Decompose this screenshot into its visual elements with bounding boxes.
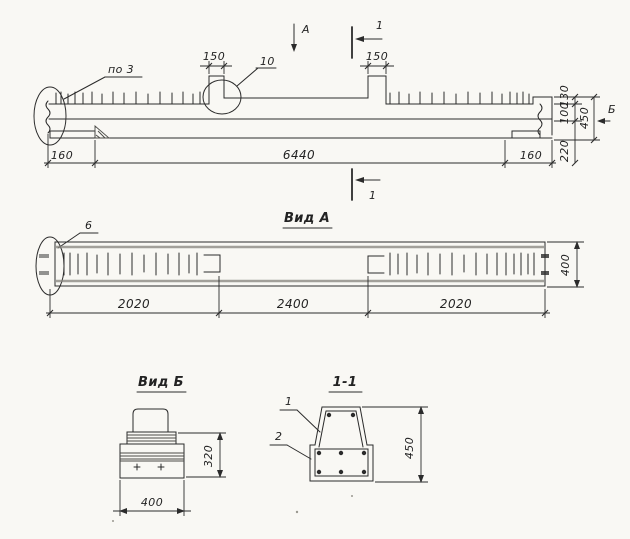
rebar-callout-2-label: 2: [275, 430, 282, 443]
stub-dim-left-label: 150: [203, 50, 225, 63]
elevation-height-dims: 130 100 220 450 Б: [554, 85, 616, 166]
rebar-dot: [351, 413, 355, 417]
view-b-arrow: Б: [597, 103, 616, 124]
section-height-label: 450: [403, 437, 416, 459]
paper-speck: [112, 520, 114, 522]
rebar-callout-2: 2: [270, 430, 311, 459]
section-mark-bottom-label: 1: [369, 189, 376, 202]
beam-outline: [46, 76, 552, 138]
stub-dim-left: 150: [200, 50, 232, 74]
overall-length-dim: 6440: [283, 148, 315, 162]
rebar-dot: [327, 413, 331, 417]
left-weld-mark: [95, 126, 109, 138]
height-dim-bottom: 220: [558, 140, 571, 162]
view-b-body: [120, 409, 184, 478]
bearing-dim-right: 160: [520, 149, 542, 162]
paper-speck: [296, 511, 298, 513]
view-b-title: Вид Б: [138, 375, 184, 390]
section-1-1: 1-1 1 2: [270, 375, 428, 483]
rebar-callout-1: 1: [280, 395, 320, 432]
rebar-dot: [339, 451, 343, 455]
section-mark-bottom: 1: [352, 169, 380, 202]
section-outline: [310, 407, 373, 481]
height-dim-overall: 450: [578, 107, 591, 129]
bearing-dim-left: 160: [51, 149, 73, 162]
view-b-width-dim: 400: [113, 480, 191, 516]
view-b-arrow-label: Б: [608, 103, 616, 116]
top-stub: [133, 409, 168, 432]
stub-dim-right: 150: [360, 50, 394, 74]
right-bearing-plate: [512, 131, 540, 138]
view-a-arrow-label: А: [301, 23, 310, 36]
anchor-marks: [134, 464, 164, 470]
view-a-width-dim: 400: [547, 241, 584, 288]
section-mark-top-label: 1: [376, 19, 383, 32]
height-dim-mid: 100: [558, 102, 571, 124]
span-dim-mid: 2400: [277, 297, 309, 311]
stub-dim-right-label: 150: [366, 50, 388, 63]
detail-callout-6-label: 6: [85, 219, 92, 232]
view-b-width-label: 400: [141, 496, 163, 509]
rebar-callout-1-label: 1: [285, 395, 292, 408]
rebar-dot: [339, 470, 343, 474]
elevation-view: А 1 1 по 3: [34, 19, 616, 202]
detail-callout-po3-label: по 3: [108, 63, 134, 76]
view-a-title: Вид А: [284, 211, 330, 226]
end-anchor-mark: [39, 271, 49, 275]
view-b-height-dim: 320: [178, 432, 226, 478]
web-stirrup: [319, 411, 363, 447]
view-a-ticks-right: [390, 253, 534, 275]
view-b: Вид Б 320 400: [113, 375, 226, 516]
rebar-dot: [317, 470, 321, 474]
detail-callout-10-label: 10: [260, 55, 275, 68]
drawing-sheet: А 1 1 по 3: [0, 0, 630, 539]
end-anchor-mark: [541, 254, 549, 258]
view-a-beam: [39, 242, 549, 286]
stirrup-ticks-right: [390, 92, 529, 104]
detail-callout-10: 10: [203, 55, 276, 114]
span-dim-right: 2020: [440, 297, 472, 311]
paper-speck: [351, 495, 353, 497]
view-a-span-dims: 2020 2400 2020: [46, 276, 550, 318]
section-title: 1-1: [333, 375, 358, 390]
view-a: Вид А 6: [36, 211, 584, 318]
view-a-arrow: А: [291, 23, 310, 52]
view-a-width-label: 400: [559, 254, 572, 276]
span-dim-left: 2020: [118, 297, 150, 311]
rebar-dot: [362, 470, 366, 474]
rebar-dot: [317, 451, 321, 455]
end-anchor-mark: [39, 254, 49, 258]
stirrup-ticks-left: [56, 92, 200, 104]
view-b-height-label: 320: [202, 445, 215, 467]
view-a-ticks-left: [64, 253, 197, 275]
beam-drawing: А 1 1 по 3: [0, 0, 630, 539]
left-bearing-plate: [50, 131, 95, 138]
splice-bracket-right: [368, 256, 384, 273]
rebar-dot: [362, 451, 366, 455]
splice-bracket-left: [204, 255, 220, 272]
end-anchor-mark: [541, 271, 549, 275]
elevation-length-dims: 160 6440 160: [44, 134, 556, 168]
